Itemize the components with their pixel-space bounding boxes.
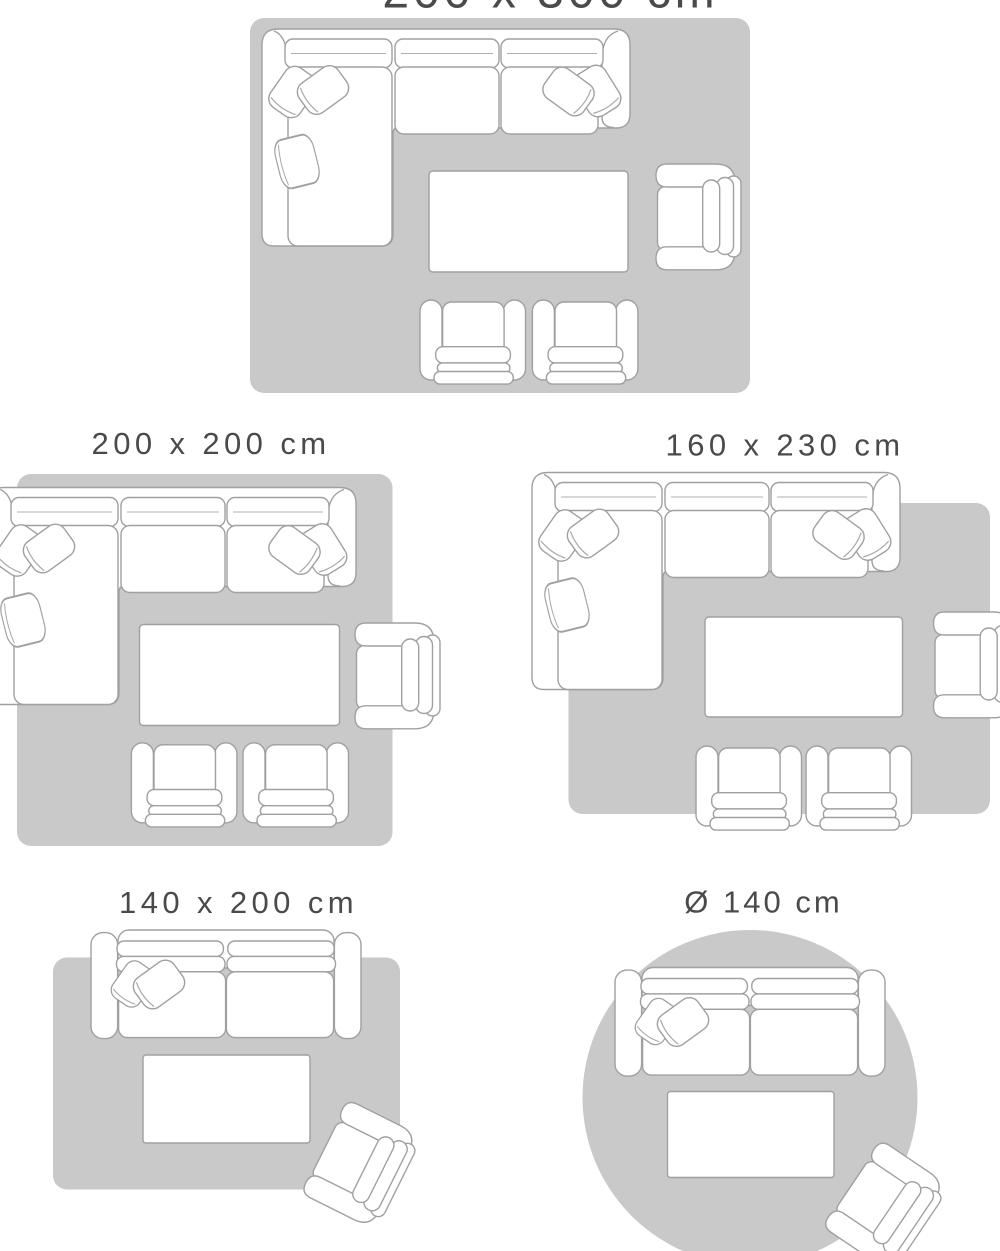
svg-text:140 x 200 cm: 140 x 200 cm bbox=[119, 885, 358, 920]
svg-text:160 x 230 cm: 160 x 230 cm bbox=[666, 428, 905, 463]
svg-text:200 x 300 cm: 200 x 300 cm bbox=[382, 0, 718, 19]
svg-text:Ø 140 cm: Ø 140 cm bbox=[684, 885, 842, 920]
svg-text:200 x 200 cm: 200 x 200 cm bbox=[92, 426, 331, 461]
